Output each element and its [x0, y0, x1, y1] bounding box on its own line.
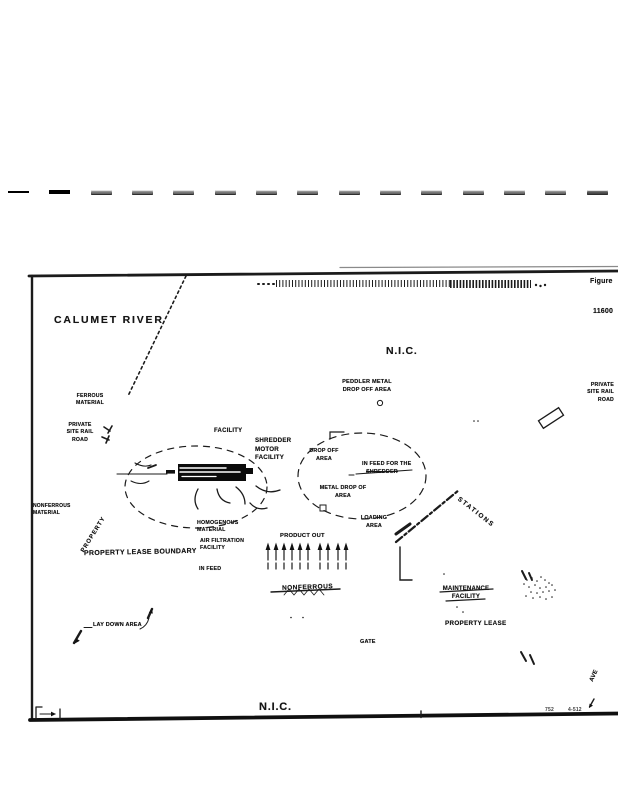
- avenue-arrow: [589, 699, 594, 708]
- corner-notch-symbol: [36, 707, 60, 719]
- product-out-label: PRODUCT OUT: [280, 532, 325, 540]
- in-feed-label: IN FEED: [199, 566, 221, 573]
- shredder-building-bar: [178, 464, 253, 481]
- metal-drop-of-area-label: METAL DROP OF AREA: [317, 485, 369, 500]
- nic-label-top: N.I.C.: [386, 344, 418, 359]
- small-tick-marks: [102, 426, 112, 443]
- nic-label-bottom: N.I.C.: [259, 700, 292, 715]
- nonferrous-material-label-left: NONFERROUS MATERIAL: [33, 503, 63, 517]
- diagonal-hash-marks: [521, 571, 534, 664]
- private-site-rail-road-label-left: PRIVATE SITE RAIL ROAD: [62, 422, 98, 444]
- shredder-struck-label: SHREDDER: [366, 469, 398, 477]
- loading-area-label: LOADING AREA: [358, 515, 390, 530]
- illegible-edge-mark-right: 4-512: [568, 707, 582, 714]
- figure-label: Figure: [590, 277, 613, 287]
- private-site-rail-road-label-right: PRIVATE SITE RAIL ROAD: [582, 382, 614, 404]
- river-bank-dashed-line: [128, 276, 186, 396]
- product-out-arrows: [266, 543, 349, 570]
- scanned-site-plan-page: Figure 11600 CALUMET RIVER N.I.C. PEDDLE…: [0, 0, 618, 800]
- maintenance-facility-label: MAINTENANCE FACILITY: [438, 585, 494, 602]
- lay-down-area-label: LAY DOWN AREA: [93, 622, 142, 630]
- stations-dash-dot-line: [396, 490, 459, 542]
- peddler-drop-circle: [377, 400, 382, 405]
- homogenous-material-label: HOMOGENOUS MATERIAL: [197, 520, 238, 535]
- shredder-area-dashed-ellipse: [125, 446, 267, 528]
- property-lease-label: PROPERTY LEASE: [445, 620, 506, 629]
- drop-off-area-label: DROP OFF AREA: [306, 448, 342, 463]
- bold-diagonal-mark: [396, 524, 410, 534]
- in-feed-for-the-label: IN FEED FOR THE: [362, 461, 411, 469]
- rotated-building-rect: [538, 408, 563, 429]
- facility-label: FACILITY: [214, 427, 242, 435]
- metal-drop-area-dashed-ellipse: [298, 433, 426, 519]
- figure-number: 11600: [593, 307, 613, 317]
- illegible-edge-mark-left: 752: [545, 707, 554, 714]
- air-filtration-facility-label: AIR FILTRATION FACILITY: [200, 538, 244, 553]
- ferrous-material-label: FERROUS MATERIAL: [72, 393, 108, 408]
- small-square-structure: [320, 505, 326, 511]
- nonferrous-struck-label: NONFERROUS: [282, 582, 334, 593]
- railroad-tick-line: [258, 284, 546, 287]
- gate-label: GATE: [360, 639, 376, 647]
- shredder-motor-facility-label: SHREDDER MOTOR FACILITY: [255, 437, 291, 463]
- peddler-metal-drop-off-label: PEDDLER METAL DROP OFF AREA: [337, 379, 397, 395]
- loading-dock-bracket: [400, 547, 412, 580]
- calumet-river-label: CALUMET RIVER: [54, 313, 164, 328]
